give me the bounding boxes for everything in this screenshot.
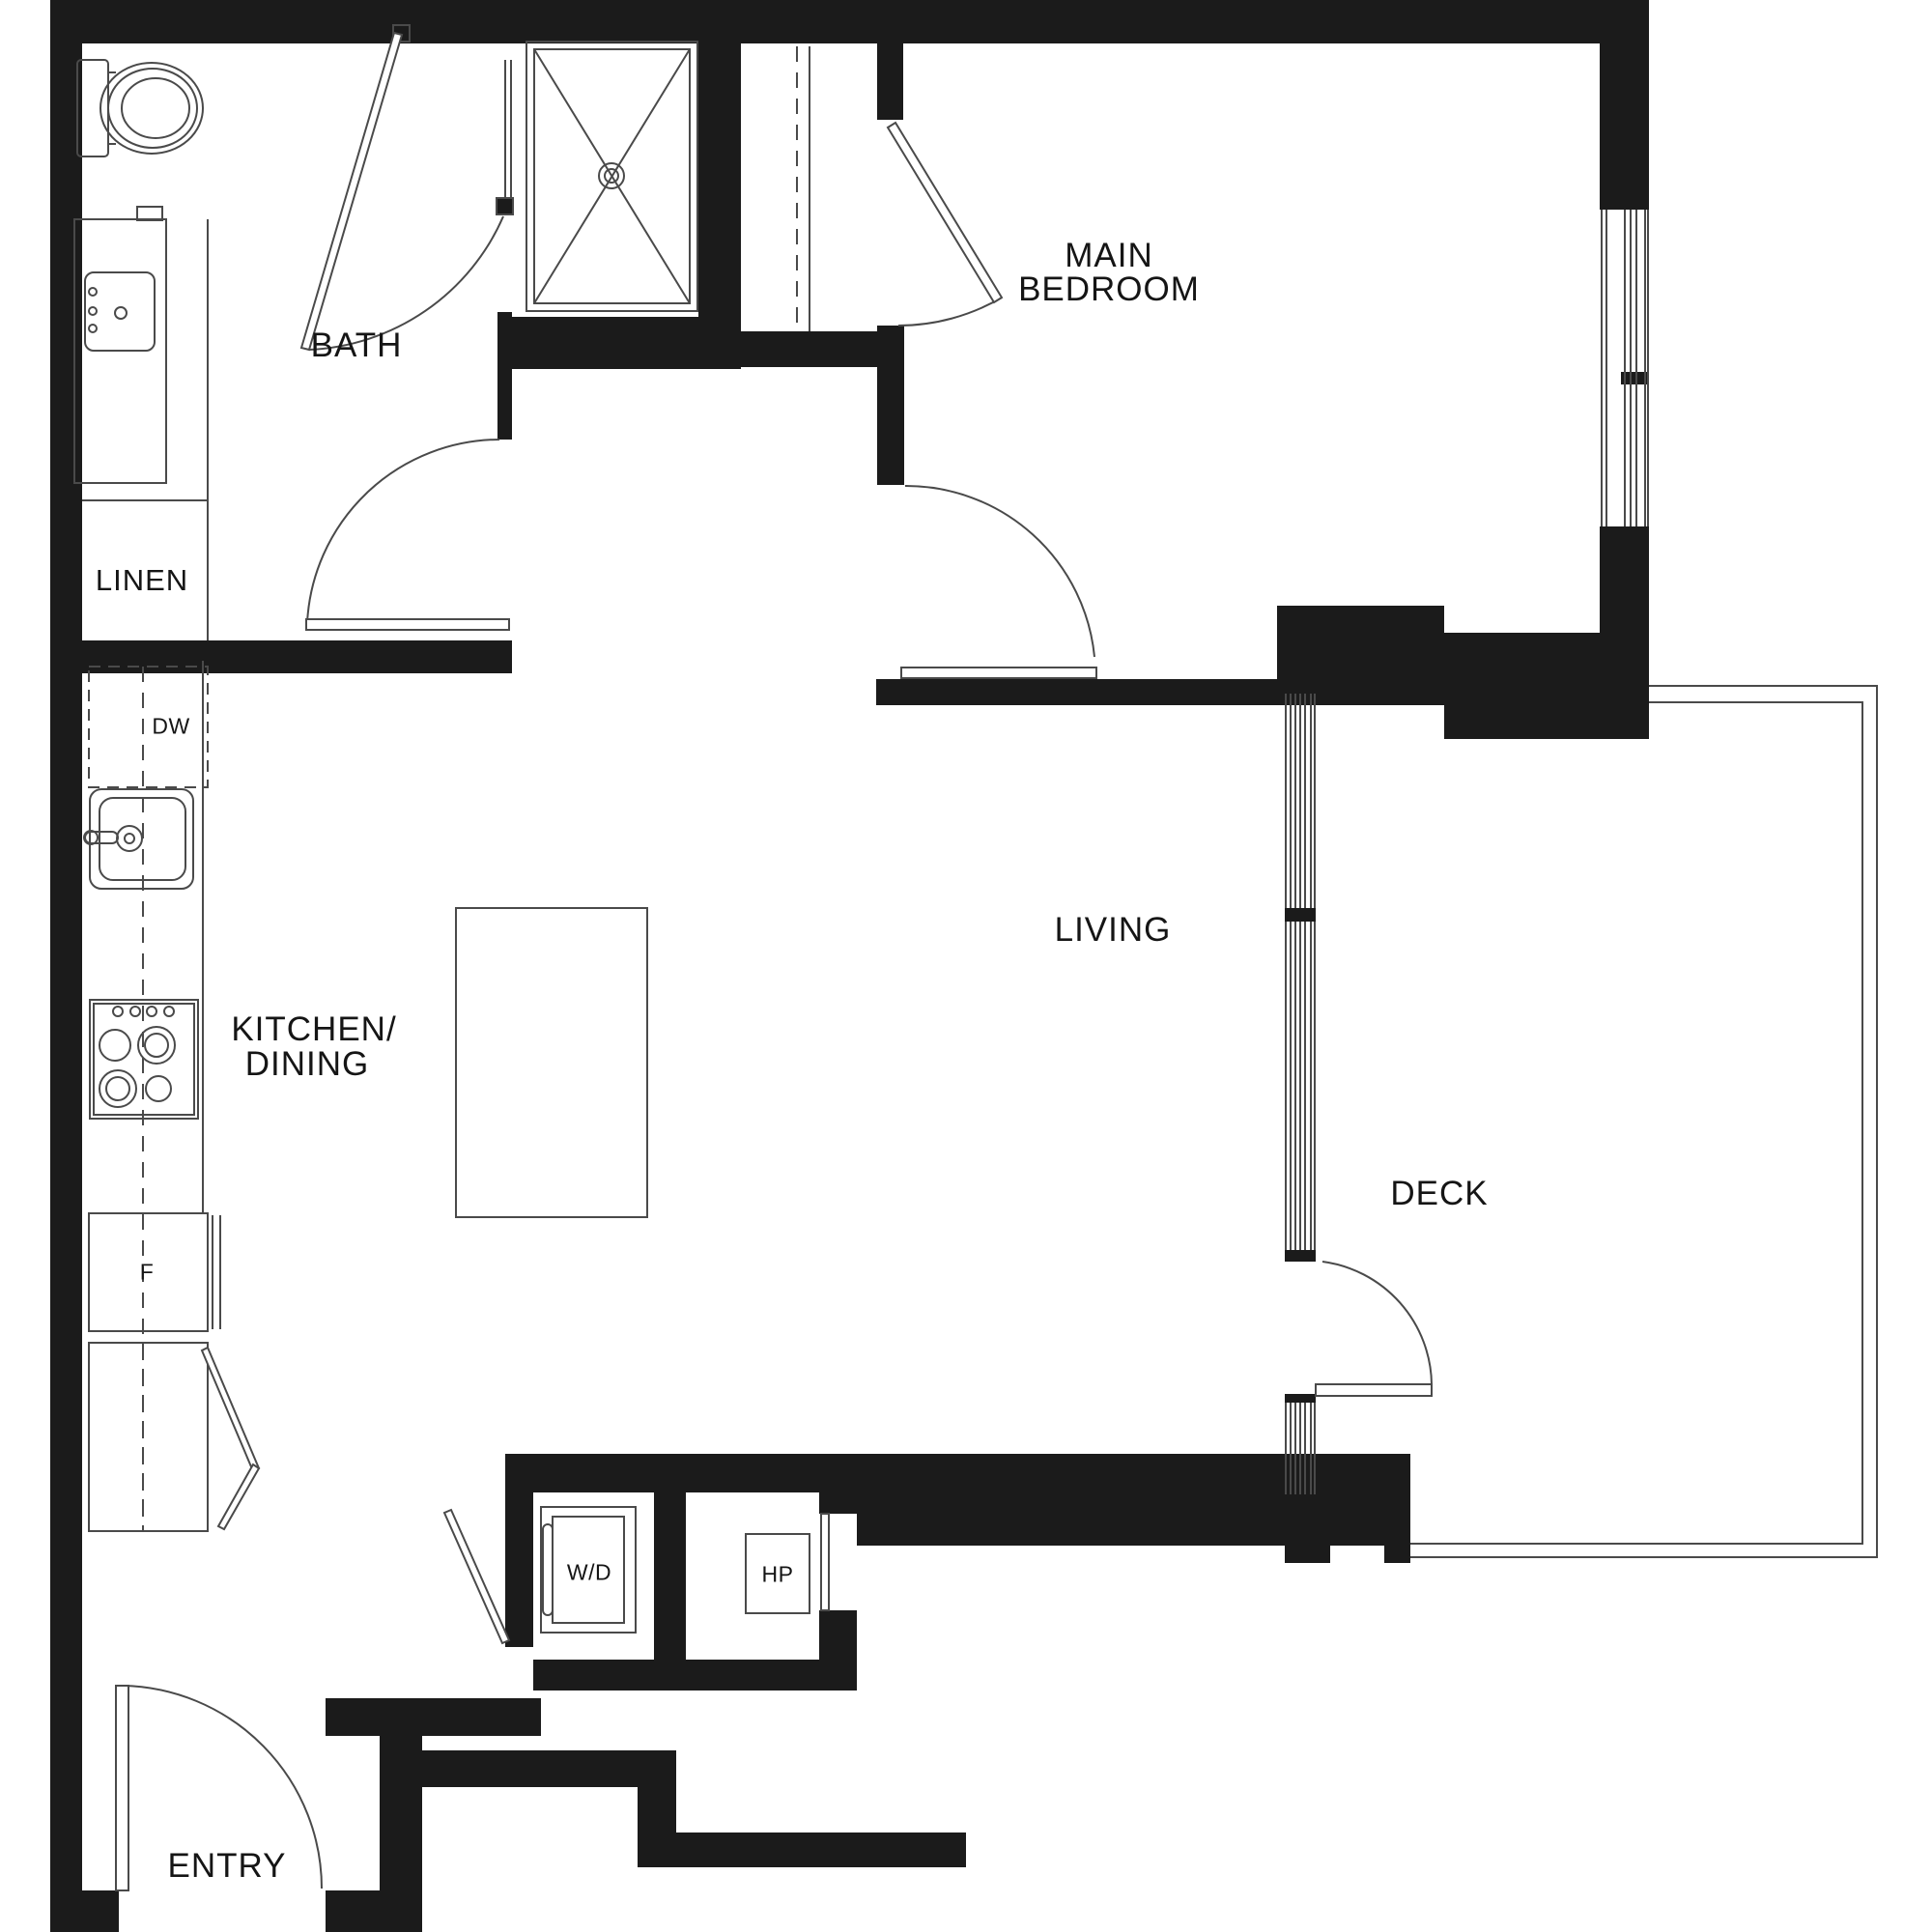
- room-label-entry: ENTRY: [168, 1847, 287, 1886]
- pantry: [89, 1343, 259, 1531]
- room-label-main-bedroom-line1: MAIN: [1065, 237, 1153, 275]
- living-window-mid: [1286, 922, 1315, 1250]
- room-label-bath: BATH: [311, 327, 403, 365]
- appliance-label-hp: HP: [762, 1562, 794, 1588]
- fridge: [89, 1213, 220, 1331]
- bedroom-door-lower: [901, 486, 1096, 678]
- appliance-label-fridge: F: [140, 1260, 155, 1286]
- room-label-kitchen-line1: KITCHEN/: [231, 1010, 396, 1049]
- appliance-label-dw: DW: [152, 714, 189, 740]
- toilet-icon: [77, 60, 203, 156]
- bedroom-door-upper: [888, 123, 1002, 326]
- living-window-lower: [1286, 1403, 1315, 1494]
- room-label-linen: LINEN: [96, 563, 188, 598]
- shower: [526, 42, 697, 311]
- living-window-upper: [1286, 694, 1315, 908]
- room-label-living: LIVING: [1055, 911, 1172, 950]
- floor-plan: BATH LINEN MAIN BEDROOM KITCHEN/ DINING …: [0, 0, 1932, 1932]
- bath-door: [306, 440, 509, 630]
- deck-outline: [1410, 686, 1877, 1557]
- room-label-deck: DECK: [1390, 1175, 1488, 1213]
- shower-door: [301, 25, 513, 350]
- closet-shelf-lines: [797, 46, 810, 331]
- kitchen-sink: [84, 789, 193, 889]
- room-label-kitchen-line2: DINING: [245, 1045, 370, 1084]
- room-label-main-bedroom-line2: BEDROOM: [1018, 270, 1200, 309]
- kitchen-island: [456, 908, 647, 1217]
- deck-door: [1316, 1262, 1432, 1396]
- bedroom-window: [1602, 210, 1648, 526]
- appliance-label-wd: W/D: [567, 1560, 611, 1586]
